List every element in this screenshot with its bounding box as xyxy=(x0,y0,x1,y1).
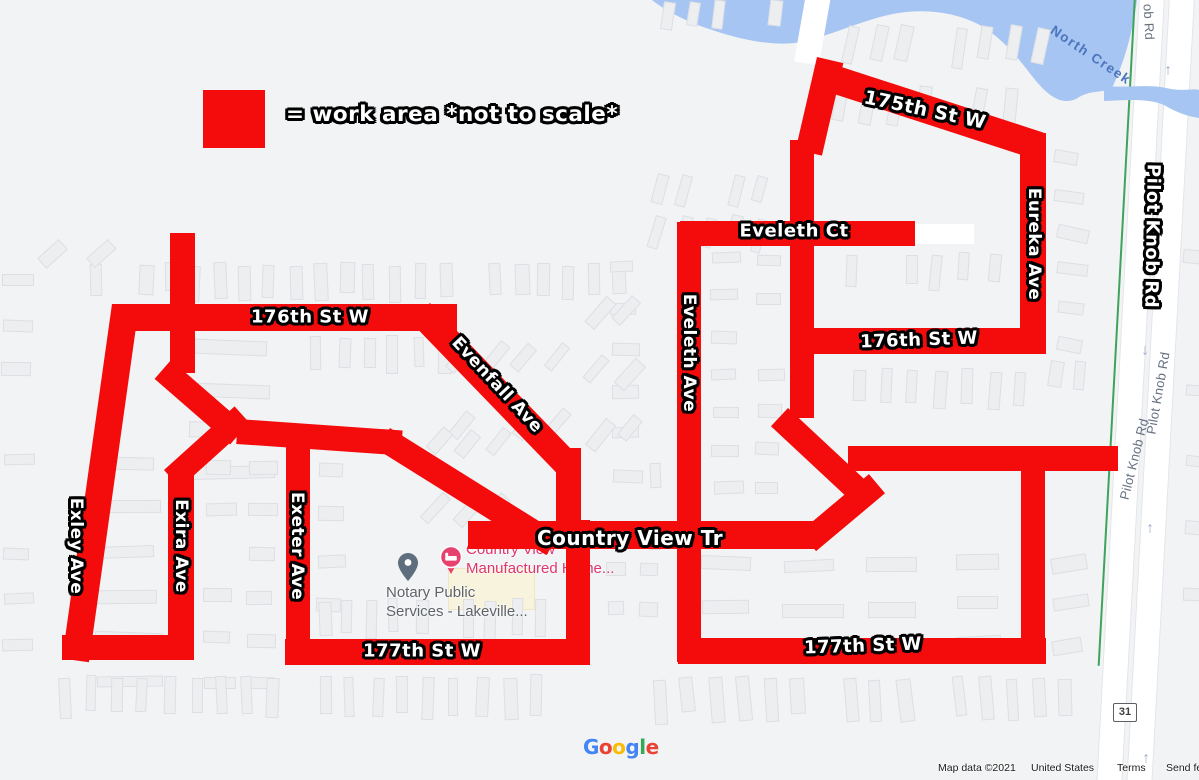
region-attribution: United States xyxy=(1031,762,1094,774)
work-area-segment xyxy=(1021,455,1045,660)
street-label-176th-st-w-right: 176th St W xyxy=(860,327,979,352)
street-label-pilot-knob-rd: Pilot Knob Rd xyxy=(1140,164,1164,309)
street-label-177th-st-w-left: 177th St W xyxy=(363,641,481,662)
work-area-segment xyxy=(848,446,1118,471)
google-logo[interactable]: Google xyxy=(583,735,659,759)
map-data-attribution: Map data ©2021 xyxy=(938,762,1016,774)
legend-text: = work area *not to scale* xyxy=(286,102,618,127)
google-logo-letter: G xyxy=(583,735,599,759)
street-label-177th-st-w-right: 177th St W xyxy=(804,633,923,658)
google-logo-letter: o xyxy=(612,735,625,759)
work-area-segment xyxy=(677,222,701,662)
terms-link[interactable]: Terms xyxy=(1117,762,1146,774)
send-feedback-link[interactable]: Send feedb xyxy=(1166,762,1199,774)
map-canvas[interactable]: 175th St WEveleth CtEveleth Ave176th St … xyxy=(0,0,1199,780)
google-logo-letter: o xyxy=(599,735,612,759)
google-logo-letter: e xyxy=(646,735,659,759)
legend-work-area-swatch xyxy=(203,90,265,148)
work-area-segment xyxy=(62,304,139,662)
work-area-segment xyxy=(790,140,814,418)
street-label-exira-ave: Exira Ave xyxy=(171,499,191,593)
street-label-exley-ave: Exley Ave xyxy=(66,498,86,595)
street-label-eveleth-ave: Eveleth Ave xyxy=(679,294,699,412)
work-area-segment xyxy=(170,233,195,373)
street-label-176th-st-w-left: 176th St W xyxy=(251,307,369,328)
google-logo-letter: g xyxy=(625,735,639,759)
street-label-eureka-ave: Eureka Ave xyxy=(1024,188,1044,301)
street-label-exeter-ave: Exeter Ave xyxy=(287,492,307,600)
street-label-eveleth-ct: Eveleth Ct xyxy=(739,221,848,242)
street-label-country-view-tr: Country View Tr xyxy=(537,526,723,550)
